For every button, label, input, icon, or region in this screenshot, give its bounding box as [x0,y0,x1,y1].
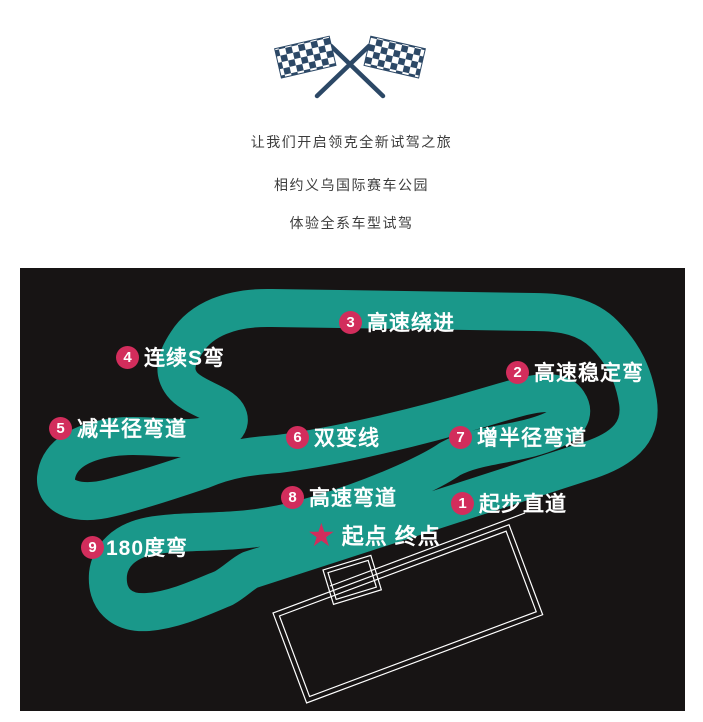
corner-label-8: 8 高速弯道 [281,484,397,510]
page: { "header": { "icon": "crossed-checkered… [0,0,703,722]
star-icon: ★ [307,517,336,553]
corner-text-3: 高速绕进 [367,307,455,337]
corner-badge-4: 4 [116,346,139,369]
track-map-panel: 1 起步直道 2 高速稳定弯 3 高速绕进 4 连续S弯 5 减半径弯道 6 双… [20,268,685,711]
corner-label-1: 1 起步直道 [451,490,567,516]
corner-text-4: 连续S弯 [144,342,225,372]
start-finish-text: 起点 终点 [342,519,441,551]
corner-text-7: 增半径弯道 [477,422,587,452]
corner-text-8: 高速弯道 [309,482,397,512]
corner-label-3: 3 高速绕进 [339,309,455,335]
corner-label-2: 2 高速稳定弯 [506,359,644,385]
corner-text-9: 180度弯 [106,532,188,562]
start-finish-label: ★ 起点 终点 [307,515,441,555]
intro-line-3: 体验全系车型试驾 [0,213,703,233]
corner-text-2: 高速稳定弯 [534,357,644,387]
corner-text-1: 起步直道 [479,488,567,518]
corner-label-9: 9 180度弯 [81,534,188,560]
corner-badge-8: 8 [281,486,304,509]
corner-badge-6: 6 [286,426,309,449]
corner-label-6: 6 双变线 [286,424,380,450]
corner-badge-5: 5 [49,417,72,440]
corner-label-7: 7 增半径弯道 [449,424,587,450]
corner-text-5: 减半径弯道 [77,413,187,443]
corner-badge-2: 2 [506,361,529,384]
corner-badge-1: 1 [451,492,474,515]
corner-label-4: 4 连续S弯 [116,344,225,370]
corner-badge-9: 9 [81,536,104,559]
corner-text-6: 双变线 [314,422,380,452]
corner-label-5: 5 减半径弯道 [49,415,187,441]
intro-line-1: 让我们开启领克全新试驾之旅 [0,132,703,152]
intro-line-2: 相约义乌国际赛车公园 [0,175,703,195]
corner-badge-3: 3 [339,311,362,334]
crossed-checkered-flags-icon [265,26,435,100]
corner-badge-7: 7 [449,426,472,449]
